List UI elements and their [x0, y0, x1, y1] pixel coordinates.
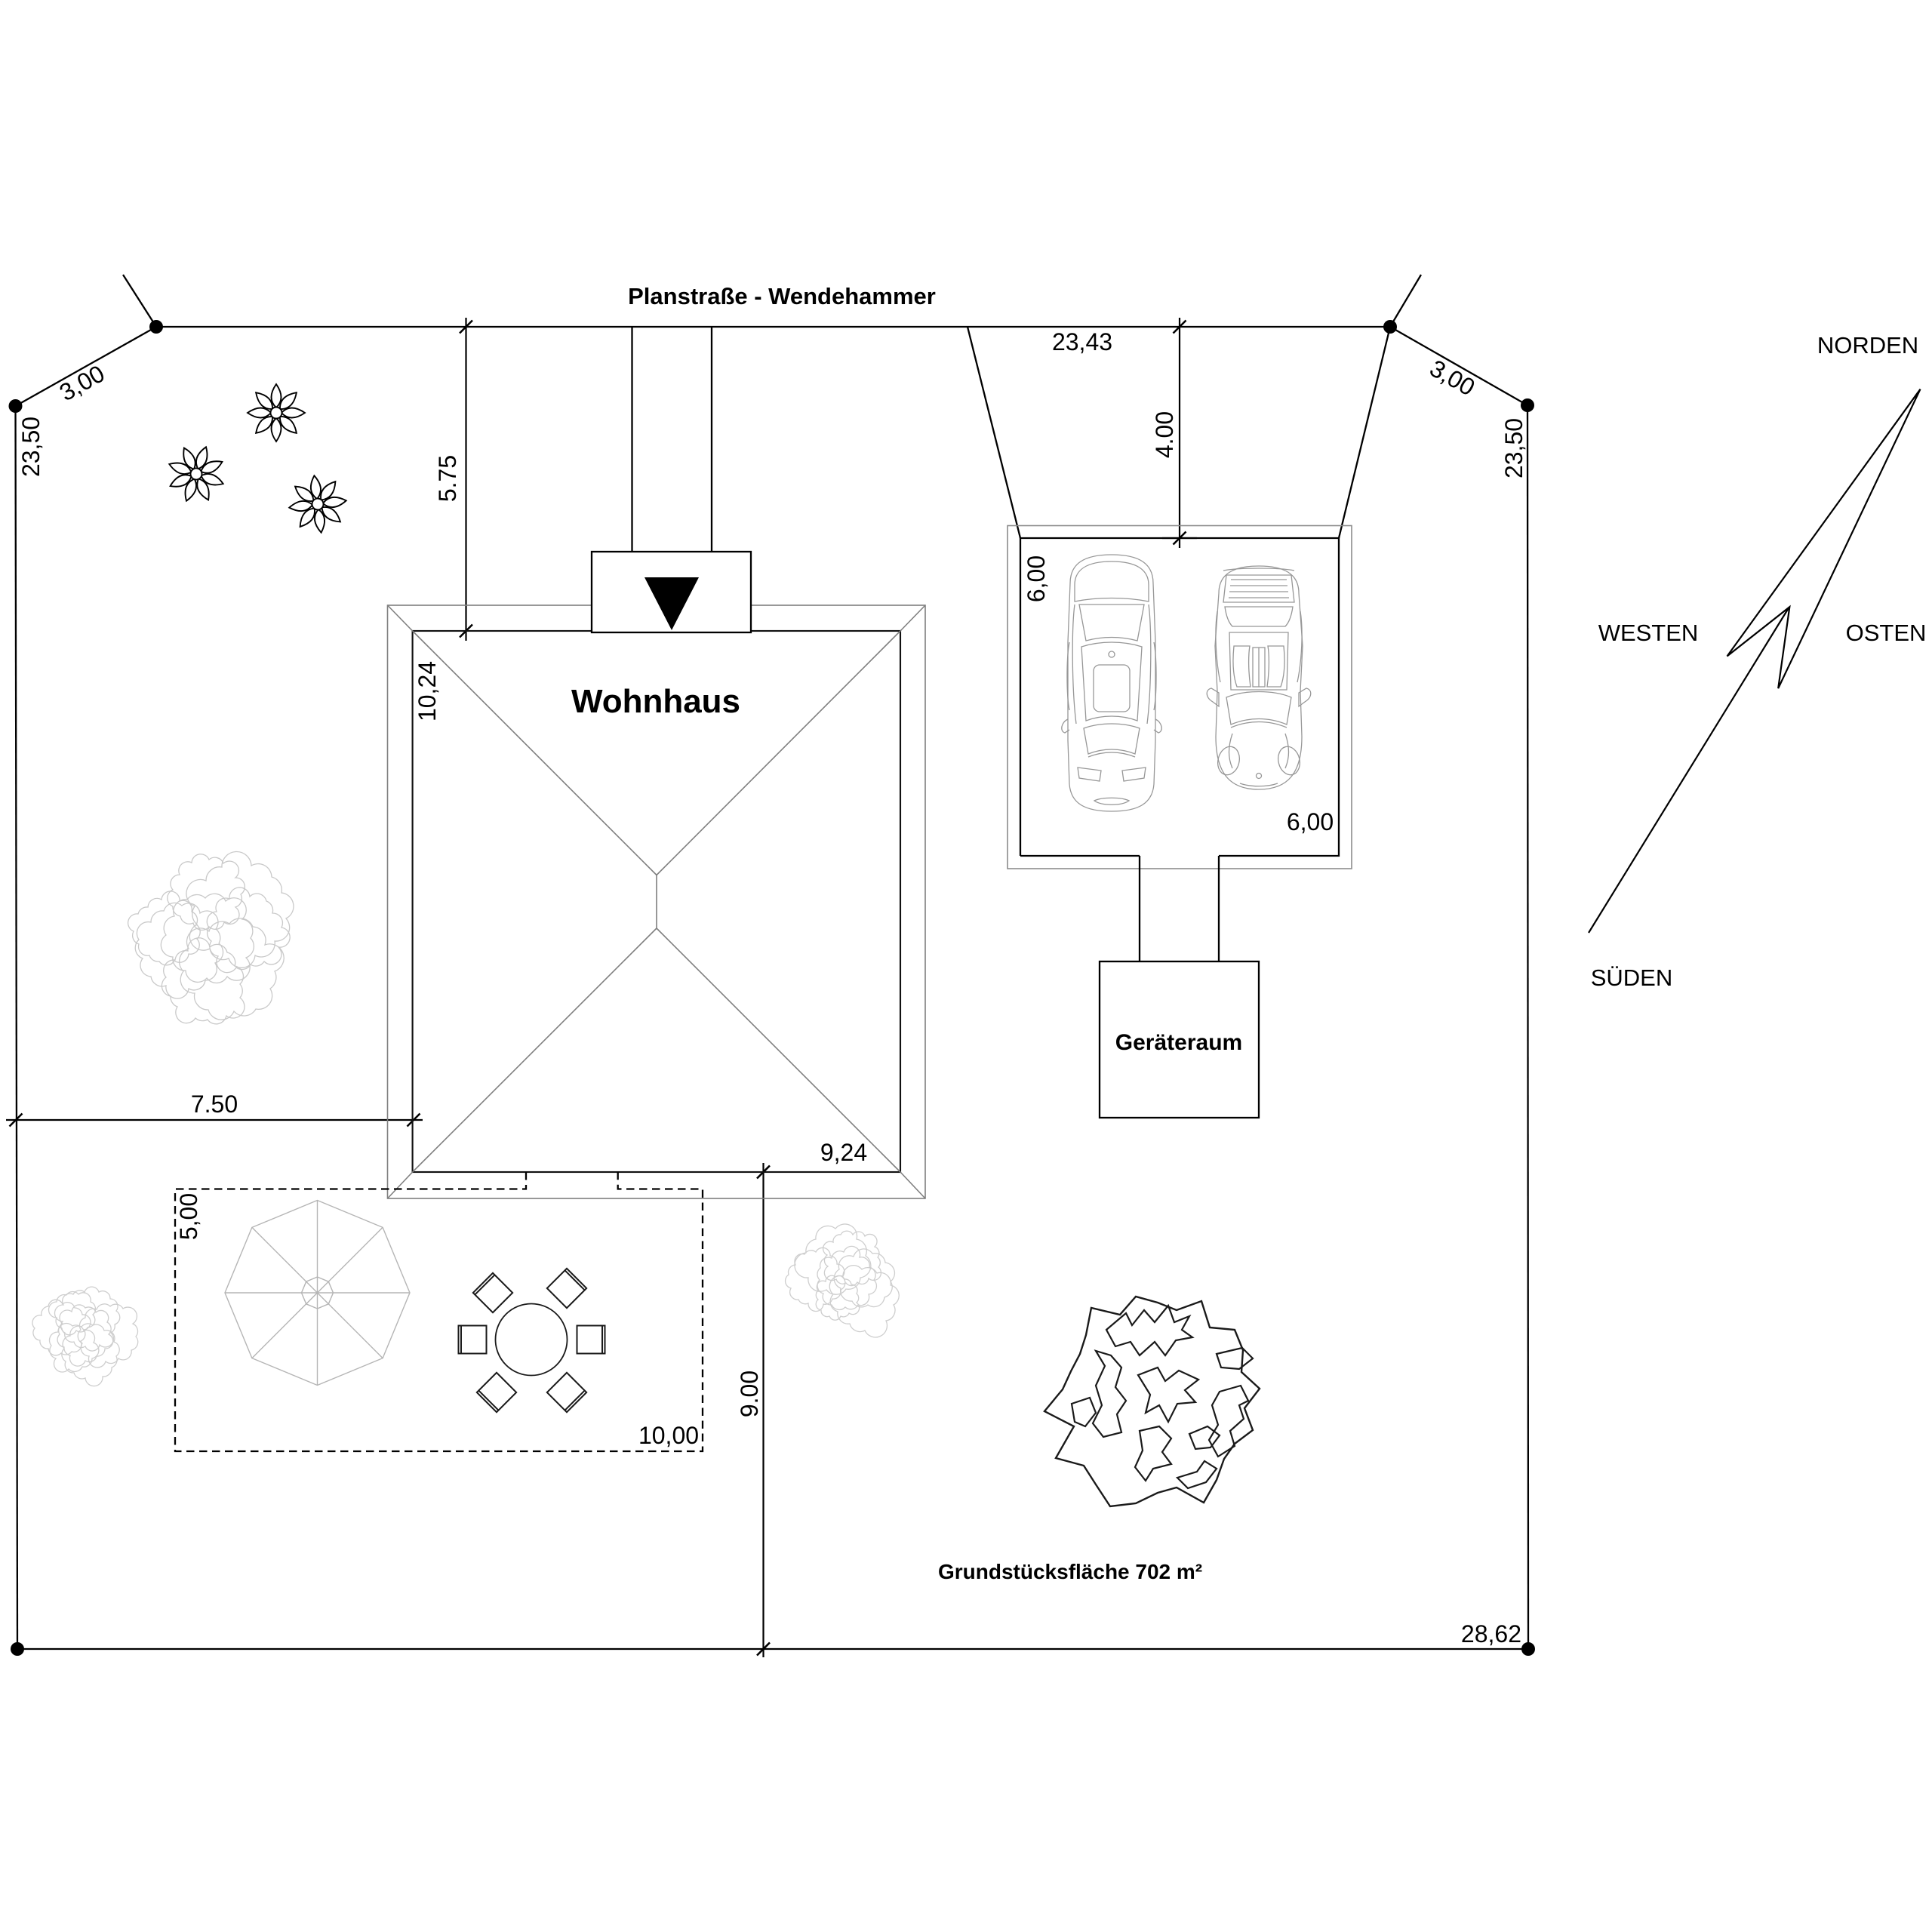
- svg-text:NORDEN: NORDEN: [1817, 332, 1918, 358]
- svg-text:Planstraße - Wendehammer: Planstraße - Wendehammer: [628, 283, 936, 309]
- svg-text:10,00: 10,00: [638, 1422, 699, 1449]
- svg-text:23,50: 23,50: [1500, 418, 1527, 478]
- svg-text:4.00: 4.00: [1151, 411, 1178, 458]
- svg-text:9.00: 9.00: [736, 1371, 763, 1417]
- svg-text:10,24: 10,24: [414, 661, 441, 721]
- svg-text:6,00: 6,00: [1023, 555, 1050, 602]
- svg-text:23,50: 23,50: [17, 417, 45, 477]
- svg-text:Wohnhaus: Wohnhaus: [571, 683, 740, 720]
- svg-text:5,00: 5,00: [175, 1193, 202, 1240]
- svg-text:5.75: 5.75: [434, 455, 461, 502]
- svg-text:Geräteraum: Geräteraum: [1115, 1030, 1242, 1055]
- svg-text:OSTEN: OSTEN: [1846, 620, 1927, 646]
- svg-text:28,62: 28,62: [1461, 1620, 1521, 1647]
- svg-text:23,43: 23,43: [1052, 328, 1112, 355]
- svg-text:SÜDEN: SÜDEN: [1591, 964, 1673, 991]
- svg-text:7.50: 7.50: [191, 1091, 238, 1118]
- svg-text:6,00: 6,00: [1287, 808, 1334, 835]
- svg-text:WESTEN: WESTEN: [1598, 620, 1699, 646]
- svg-text:9,24: 9,24: [820, 1139, 867, 1166]
- svg-text:Grundstücksfläche 702 m²: Grundstücksfläche 702 m²: [938, 1560, 1202, 1583]
